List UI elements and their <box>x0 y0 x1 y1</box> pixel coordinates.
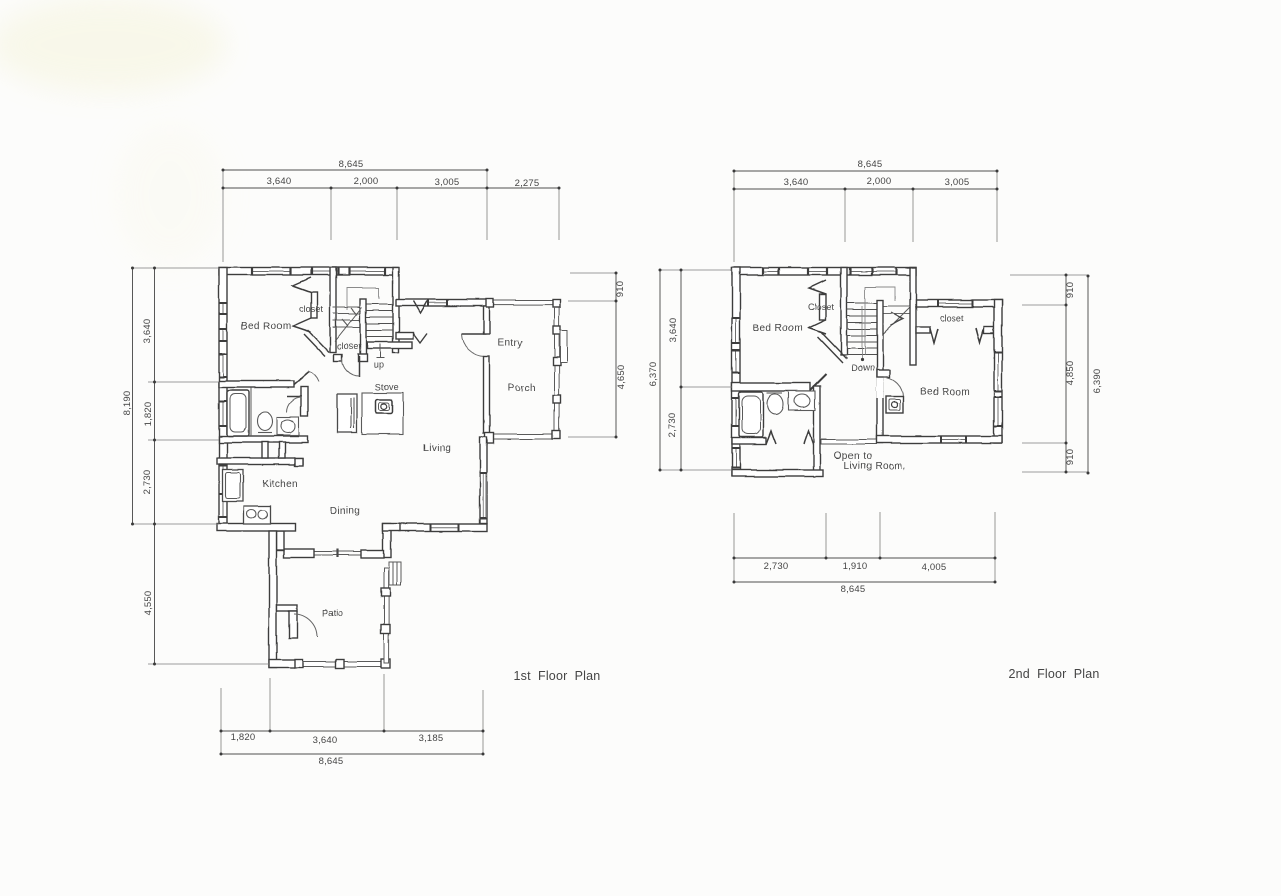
svg-text:Kitchen: Kitchen <box>262 479 298 490</box>
svg-text:8,645: 8,645 <box>858 159 883 170</box>
svg-text:910: 910 <box>615 281 626 297</box>
svg-text:Bed Room: Bed Room <box>920 387 970 398</box>
svg-text:8,190: 8,190 <box>122 391 133 416</box>
svg-text:2,730: 2,730 <box>667 413 678 438</box>
svg-text:3,640: 3,640 <box>142 319 153 344</box>
svg-text:3,640: 3,640 <box>784 177 809 188</box>
svg-text:closet: closet <box>940 313 965 323</box>
svg-text:8,645: 8,645 <box>841 584 866 595</box>
svg-text:3,005: 3,005 <box>945 177 970 188</box>
svg-text:910: 910 <box>1065 282 1076 298</box>
svg-text:Down: Down <box>851 363 874 373</box>
svg-text:8,645: 8,645 <box>319 756 344 767</box>
svg-text:1,910: 1,910 <box>843 561 868 572</box>
svg-text:Dining: Dining <box>330 506 360 517</box>
svg-text:3,640: 3,640 <box>313 735 338 746</box>
svg-text:4,650: 4,650 <box>616 365 627 390</box>
svg-text:Living Room,: Living Room, <box>844 461 906 472</box>
svg-text:2,730: 2,730 <box>764 561 789 572</box>
svg-text:Closet: Closet <box>808 302 835 312</box>
svg-text:2,730: 2,730 <box>142 470 153 495</box>
svg-text:closet: closet <box>299 304 324 314</box>
svg-text:Porch: Porch <box>508 383 536 394</box>
svg-text:Entry: Entry <box>497 338 522 349</box>
svg-text:Stove: Stove <box>375 382 399 392</box>
svg-text:3,185: 3,185 <box>419 733 444 744</box>
svg-text:6,390: 6,390 <box>1092 369 1103 394</box>
svg-text:Bed Room: Bed Room <box>241 321 291 332</box>
svg-text:1st Floor Plan: 1st Floor Plan <box>514 669 601 683</box>
svg-text:4,550: 4,550 <box>143 591 154 616</box>
svg-text:3,640: 3,640 <box>267 176 292 187</box>
svg-text:2,275: 2,275 <box>515 178 540 189</box>
svg-text:up: up <box>374 360 384 370</box>
svg-text:6,370: 6,370 <box>648 362 659 387</box>
svg-text:1,820: 1,820 <box>143 402 154 427</box>
svg-text:Bed Room: Bed Room <box>753 323 803 334</box>
svg-text:4,850: 4,850 <box>1065 361 1076 386</box>
svg-text:4,005: 4,005 <box>922 562 947 573</box>
svg-text:Living: Living <box>423 443 451 454</box>
svg-text:910: 910 <box>1065 449 1076 465</box>
svg-text:2nd Floor Plan: 2nd Floor Plan <box>1008 667 1099 681</box>
svg-text:3,640: 3,640 <box>668 318 679 343</box>
svg-text:3,005: 3,005 <box>435 177 460 188</box>
svg-text:closet: closet <box>337 341 362 351</box>
svg-text:1,820: 1,820 <box>231 732 256 743</box>
svg-text:8,645: 8,645 <box>339 159 364 170</box>
svg-text:2,000: 2,000 <box>354 176 379 187</box>
svg-text:Patio: Patio <box>322 608 343 618</box>
svg-text:2,000: 2,000 <box>867 176 892 187</box>
